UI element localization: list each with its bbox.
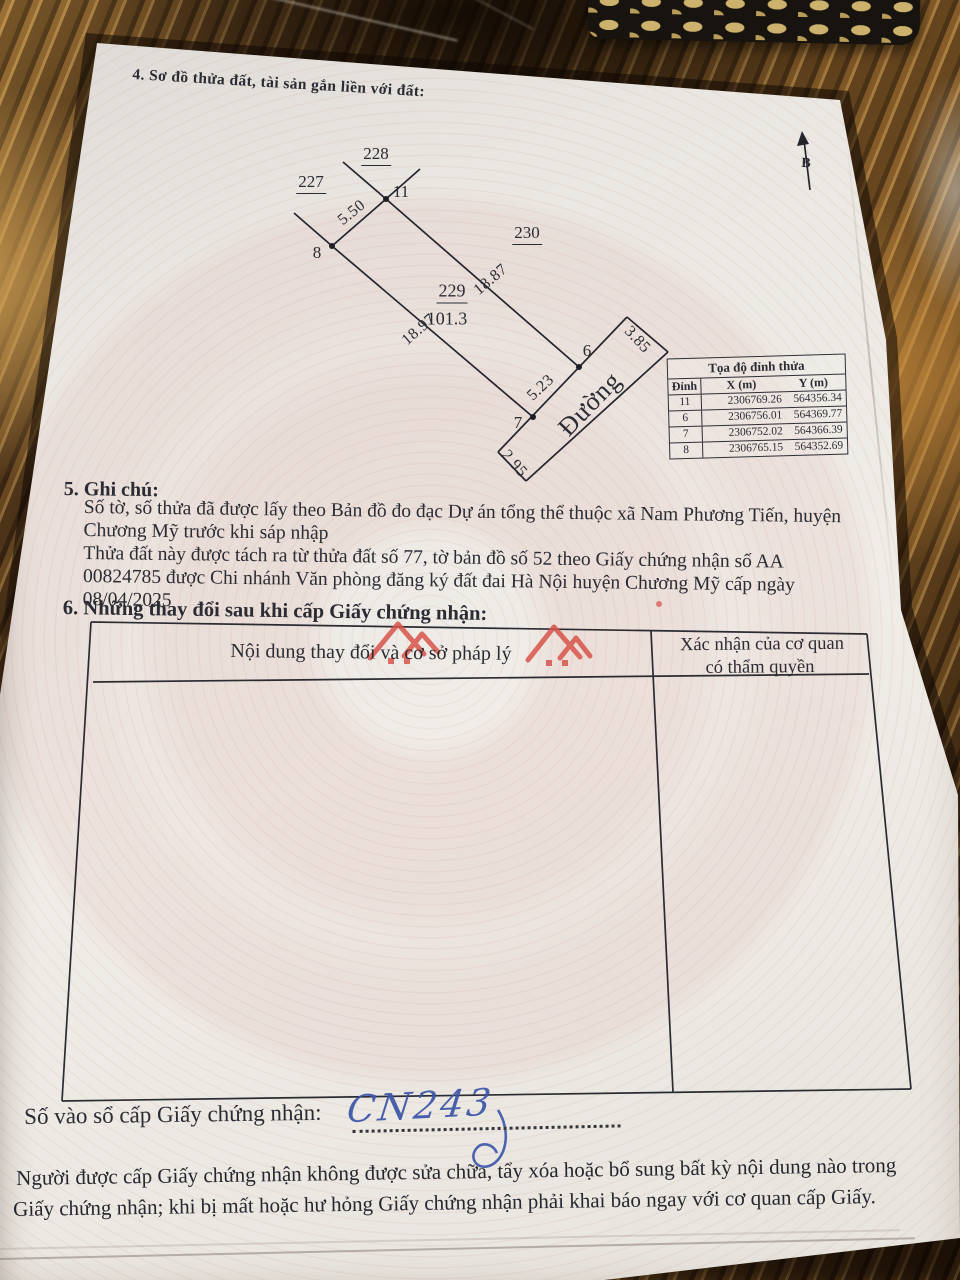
coord-cell: 564356.34 — [785, 391, 846, 408]
parcel-label-230: 230 — [512, 223, 542, 245]
changes-col2-header-line1: Xác nhận của cơ quan — [680, 634, 844, 656]
parcel-label-229: 229 — [437, 281, 468, 304]
coord-header-dinh: Đỉnh — [668, 379, 701, 395]
vertex-label-7: 7 — [514, 413, 523, 433]
vertex-label-11: 11 — [393, 182, 409, 202]
coord-cell: 2306765.15 — [703, 440, 786, 457]
registry-number-label: Số vào sổ cấp Giấy chứng nhận: — [24, 1100, 322, 1130]
vertex-label-6: 6 — [583, 341, 592, 361]
changes-col1-header: Nội dung thay đổi và cơ sở pháp lý — [230, 640, 511, 666]
parcel-label-228: 228 — [361, 144, 391, 166]
changes-table-borders — [62, 622, 911, 1101]
coord-cell: 7 — [670, 427, 703, 443]
coord-cell: 8 — [670, 443, 703, 459]
coord-cell: 2306752.02 — [703, 424, 786, 441]
coord-cell: 6 — [669, 411, 702, 427]
coord-header-y: Y (m) — [781, 375, 845, 392]
coord-cell: 11 — [669, 395, 702, 411]
coord-cell: 564369.77 — [785, 407, 846, 424]
photo-of-land-certificate: 4. Sơ đồ thửa đất, tài sản gắn liền với … — [0, 0, 960, 1280]
north-label: B — [801, 156, 811, 172]
coord-cell: 2306756.01 — [702, 408, 785, 425]
changes-col2-header-line2: có thẩm quyền — [705, 657, 814, 679]
coord-cell: 564352.69 — [786, 439, 847, 456]
certificate-paper: 4. Sơ đồ thửa đất, tài sản gắn liền với … — [0, 0, 960, 1280]
coord-cell: 2306769.26 — [702, 392, 785, 409]
coord-header-x: X (m) — [701, 376, 781, 393]
registry-number-handwritten: CN243 — [345, 1080, 496, 1131]
coord-table: Tọa độ đỉnh thửa Đỉnh X (m) Y (m) 11 230… — [667, 354, 849, 460]
woven-basket — [588, 0, 921, 45]
parcel-label-227: 227 — [296, 172, 326, 194]
coord-cell: 564366.39 — [786, 423, 847, 440]
watermark-house-icon — [528, 627, 590, 666]
red-ink-speck — [656, 601, 662, 607]
vertex-label-8: 8 — [313, 243, 322, 263]
